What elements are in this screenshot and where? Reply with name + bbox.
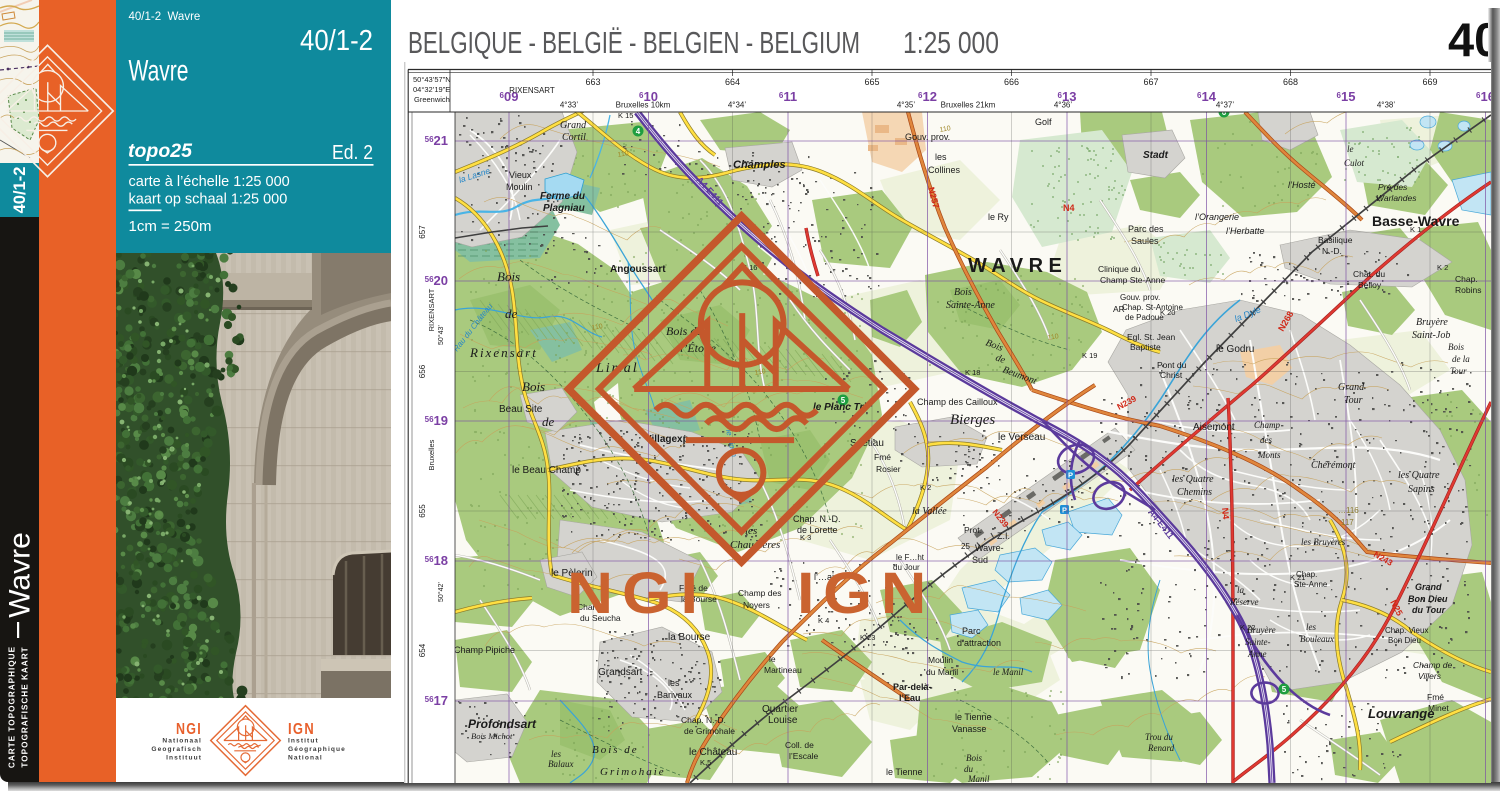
svg-text:4°36’: 4°36’ [1054,101,1073,110]
svg-text:1:25 000: 1:25 000 [903,26,999,60]
svg-text:Réserve: Réserve [1229,597,1258,607]
svg-text:Gouv. prov.: Gouv. prov. [905,132,950,142]
svg-text:4: 4 [636,127,641,136]
svg-text:50°43’: 50°43’ [437,325,445,345]
svg-text:TOPOGRAFISCHE KAART: TOPOGRAFISCHE KAART [21,646,30,767]
svg-text:les: les [668,678,680,688]
svg-text:666: 666 [1004,77,1019,87]
svg-text:Tour: Tour [1344,395,1363,406]
svg-text:d’attraction: d’attraction [957,638,1001,648]
svg-text:Sapins: Sapins [1408,484,1435,495]
svg-text:Aisemont: Aisemont [1193,422,1235,433]
svg-text:K 18: K 18 [965,368,980,377]
svg-text:l’Eau: l’Eau [899,693,921,703]
svg-text:la Vallée: la Vallée [912,506,947,517]
svg-text:Noyers: Noyers [743,600,770,610]
svg-text:663: 663 [585,77,600,87]
svg-text:4°33’: 4°33’ [560,101,579,110]
svg-text:Bruxelles 10km: Bruxelles 10km [616,101,671,110]
svg-text:Chérémont: Chérémont [1311,460,1356,471]
svg-text:du Manil: du Manil [926,667,958,677]
svg-text:K 20: K 20 [1160,308,1175,317]
svg-text:Wavre: Wavre [4,532,37,618]
svg-text:de: de [542,414,555,429]
svg-text:5: 5 [1282,685,1287,694]
svg-text:Profondsart: Profondsart [468,717,537,731]
svg-text:Coll. de: Coll. de [785,740,814,750]
svg-text:le Beau Champ: le Beau Champ [512,465,581,476]
svg-text:Angoussart: Angoussart [610,264,666,275]
svg-text:Bon Dieu: Bon Dieu [1388,636,1421,645]
svg-text:la Bourse: la Bourse [668,632,711,643]
svg-text:Bois: Bois [954,287,972,298]
svg-text:l’Herbatte: l’Herbatte [1226,226,1265,236]
svg-text:K 2: K 2 [1437,263,1448,272]
svg-text:…116: …116 [1338,506,1359,515]
svg-text:Grandsart: Grandsart [598,667,643,678]
svg-text:50°43’57”N: 50°43’57”N [413,75,451,84]
svg-text:Champ Pipiche: Champ Pipiche [454,645,515,655]
svg-text:Louise: Louise [768,715,798,726]
svg-text:kaart op schaal 1:25 000: kaart op schaal 1:25 000 [129,192,288,208]
svg-text:Par-delà-: Par-delà- [893,682,932,692]
svg-text:Belloy: Belloy [1358,280,1382,290]
svg-text:la: la [1237,585,1245,595]
svg-text:IGN: IGN [797,561,935,626]
svg-text:Gouv. prov.: Gouv. prov. [1120,293,1160,302]
svg-text:Trou du: Trou du [1145,732,1173,742]
svg-text:Grand: Grand [1415,582,1442,592]
svg-text:Greenwich: Greenwich [414,95,450,104]
svg-text:Monts: Monts [1257,450,1281,460]
svg-text:le Tienne: le Tienne [955,712,992,722]
svg-text:Moulin: Moulin [506,182,533,192]
svg-text:Instituut: Instituut [166,755,202,762]
svg-text:les Bruyères: les Bruyères [1301,537,1346,547]
svg-text:K 21: K 21 [1290,573,1305,582]
svg-text:Bois de: Bois de [592,744,639,756]
svg-text:de Padoue: de Padoue [1125,313,1164,322]
svg-text:655: 655 [418,504,427,518]
svg-text:Basilique: Basilique [1318,235,1353,245]
svg-text:Martineau: Martineau [764,665,802,675]
svg-text:Saint-Job: Saint-Job [1412,330,1450,341]
svg-text:K 1: K 1 [1410,225,1421,234]
svg-text:de: de [505,306,518,321]
svg-text:Balaux: Balaux [548,759,574,769]
svg-text:RIXENSART: RIXENSART [427,288,436,331]
svg-text:Bruyère: Bruyère [1416,317,1448,328]
svg-text:Champ des: Champ des [738,588,781,598]
svg-text:Nationaal: Nationaal [162,738,202,745]
svg-text:carte à l’échelle 1:25 000: carte à l’échelle 1:25 000 [129,174,290,190]
svg-text:Beau Site: Beau Site [499,404,543,415]
svg-text:Vieux: Vieux [509,170,532,180]
svg-text:Baptiste: Baptiste [1130,342,1161,352]
svg-text:Rixensart: Rixensart [469,345,538,360]
svg-text:Tour: Tour [1450,366,1467,376]
svg-text:P: P [1068,471,1073,480]
svg-text:Chap.: Chap. [1455,274,1478,284]
svg-text:Christ: Christ [1160,370,1183,380]
svg-text:Plagniau: Plagniau [543,203,585,214]
svg-text:CARTE TOPOGRAPHIQUE: CARTE TOPOGRAPHIQUE [8,646,17,768]
svg-text:le: le [1347,144,1354,154]
svg-text:le Ry: le Ry [988,212,1009,222]
svg-text:Culot: Culot [1344,158,1365,168]
svg-text:Louvrange: Louvrange [1368,706,1434,721]
svg-text:Bruxelles: Bruxelles [427,439,436,470]
svg-text:Wavre-: Wavre- [975,543,1004,553]
svg-text:des: des [1260,435,1272,445]
svg-text:Grand: Grand [560,120,587,131]
svg-text:Quartier: Quartier [762,704,799,715]
svg-text:Bruxelles 21km: Bruxelles 21km [941,101,996,110]
svg-text:Grand: Grand [1338,382,1365,393]
svg-text:de Grimohale: de Grimohale [684,726,735,736]
svg-text:Pré des: Pré des [1378,182,1408,192]
svg-text:654: 654 [418,643,427,657]
svg-text:Stadt: Stadt [1143,150,1169,161]
svg-text:Grimohaie: Grimohaie [600,766,666,778]
svg-text:Warlandes: Warlandes [1376,193,1417,203]
svg-text:Ed. 2: Ed. 2 [332,142,373,164]
svg-text:Bois: Bois [966,753,982,763]
svg-text:664: 664 [725,77,740,87]
svg-text:667: 667 [1143,77,1158,87]
svg-text:Bierges: Bierges [950,412,995,428]
svg-text:les: les [1306,622,1316,632]
svg-text:Sainte-Anne: Sainte-Anne [946,300,995,311]
svg-text:Collines: Collines [928,165,961,175]
svg-text:Parc des: Parc des [1128,224,1164,234]
svg-text:Chap. N.-D.: Chap. N.-D. [793,514,841,524]
svg-text:IGN: IGN [288,721,315,738]
svg-text:K 23: K 23 [860,633,875,642]
svg-text:4°34’: 4°34’ [728,101,747,110]
svg-text:Bois: Bois [522,379,545,394]
svg-text:Bois: Bois [1448,342,1464,352]
svg-text:K 5: K 5 [700,758,711,767]
svg-text:Manil: Manil [967,774,990,783]
svg-text:l’Escale: l’Escale [789,751,819,761]
svg-text:NGI: NGI [176,721,202,738]
svg-text:Parc: Parc [962,626,981,636]
svg-text:Clinique du: Clinique du [1098,264,1141,274]
svg-text:Sainte-: Sainte- [1245,637,1271,647]
svg-text:NGI: NGI [567,561,707,626]
svg-text:Bon Dieu: Bon Dieu [1408,594,1448,604]
svg-text:Champ: Champ [1254,420,1281,430]
svg-text:Chemins: Chemins [1177,487,1212,498]
svg-text:Bois: Bois [497,269,520,284]
svg-text:Prot.: Prot. [964,525,982,535]
svg-text:Cortil: Cortil [562,132,586,143]
svg-text:le Verseau: le Verseau [998,432,1045,443]
svg-text:Champ de: Champ de [1413,660,1452,670]
svg-text:4°35’: 4°35’ [897,101,916,110]
svg-text:K 3: K 3 [800,533,811,542]
svg-text:Champ Ste-Anne: Champ Ste-Anne [1100,275,1165,285]
svg-text:Chap. Vieux: Chap. Vieux [1385,626,1428,635]
svg-text:les: les [551,749,561,759]
svg-text:l’Orangerie: l’Orangerie [1195,212,1239,222]
svg-text:Egl. St. Jean: Egl. St. Jean [1127,332,1175,342]
svg-text:National: National [288,755,323,762]
svg-text:les Quatre: les Quatre [1172,474,1214,485]
svg-text:668: 668 [1283,77,1298,87]
svg-text:Z.I.: Z.I. [997,531,1010,541]
svg-text:04°32’19”E: 04°32’19”E [413,85,450,94]
svg-text:WAVRE: WAVRE [968,255,1067,277]
svg-text:du: du [964,764,974,774]
svg-text:Villers: Villers [1418,671,1442,681]
svg-text:Chap. N.-D.: Chap. N.-D. [681,715,726,725]
svg-text:Champles: Champles [733,159,786,171]
svg-text:Wavre: Wavre [129,55,189,88]
svg-text:4°38’: 4°38’ [1377,101,1396,110]
svg-text:le Manil: le Manil [993,667,1024,677]
svg-text:117: 117 [1341,518,1354,527]
svg-text:Robins: Robins [1455,285,1481,295]
svg-text:BELGIQUE - BELGIË - BELGIEN -: BELGIQUE - BELGIË - BELGIEN - BELGIUM [408,26,860,60]
svg-text:657: 657 [418,225,427,239]
svg-text:669: 669 [1422,77,1437,87]
svg-text:topo25: topo25 [128,140,193,162]
svg-text:40/: 40/ [1448,13,1488,62]
svg-text:RIXENSART: RIXENSART [509,86,555,95]
svg-text:656: 656 [418,364,427,378]
svg-text:N4: N4 [1220,507,1231,519]
svg-text:le Godru: le Godru [1216,344,1254,355]
svg-text:Champ des Cailloux: Champ des Cailloux [917,397,998,407]
svg-text:N4: N4 [1063,203,1075,213]
svg-text:Vanasse: Vanasse [952,724,986,734]
svg-text:du Tour: du Tour [1412,605,1446,615]
svg-text:Ferme du: Ferme du [540,191,585,202]
svg-text:Pont du: Pont du [1157,360,1187,370]
svg-text:K 22: K 22 [1240,623,1255,632]
svg-text:le Tienne: le Tienne [886,767,923,777]
svg-text:4°37’: 4°37’ [1216,101,1235,110]
svg-text:Sud: Sud [972,555,988,565]
svg-text:40/1-2 Wavre: 40/1-2 Wavre [129,11,201,23]
svg-text:K 19: K 19 [1082,351,1097,360]
svg-text:P: P [1062,506,1067,515]
svg-text:Fmé: Fmé [1427,692,1444,702]
svg-text:Geografisch: Geografisch [151,746,202,753]
svg-text:Renard: Renard [1147,743,1175,753]
svg-text:Golf: Golf [1035,117,1052,127]
svg-text:Géographique: Géographique [288,746,346,753]
svg-text:40/1-2: 40/1-2 [300,25,373,57]
svg-text:Anne: Anne [1247,649,1267,659]
svg-text:Chât. du: Chât. du [1353,269,1385,279]
svg-text:Rosier: Rosier [876,464,901,474]
svg-text:Saules: Saules [1131,236,1159,246]
svg-text:Bouleaux: Bouleaux [1300,634,1334,644]
svg-text:N.-D.: N.-D. [1322,246,1342,256]
svg-text:665: 665 [864,77,879,87]
svg-text:de la: de la [1452,354,1470,364]
svg-text:l’Hosté: l’Hosté [1288,180,1316,190]
svg-text:Moulin: Moulin [928,655,953,665]
svg-text:Institut: Institut [288,738,319,745]
svg-text:les: les [935,152,947,162]
svg-text:50°42’: 50°42’ [437,582,445,602]
svg-text:Fmé: Fmé [874,452,891,462]
svg-text:Bois Michot: Bois Michot [471,731,513,741]
svg-text:le Château: le Château [689,747,737,758]
svg-text:25: 25 [961,542,970,551]
svg-text:K 2: K 2 [920,483,931,492]
svg-text:Barivaux: Barivaux [657,690,693,700]
svg-text:le: le [769,654,776,664]
svg-text:les Quatre: les Quatre [1398,470,1440,481]
svg-text:1cm = 250m: 1cm = 250m [129,218,212,235]
